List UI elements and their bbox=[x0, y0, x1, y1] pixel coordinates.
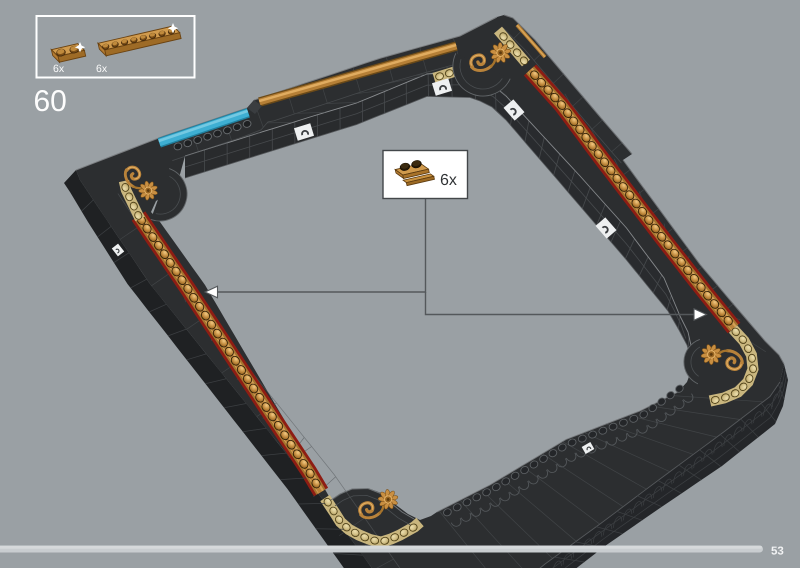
svg-text:6x: 6x bbox=[96, 63, 108, 75]
svg-text:6x: 6x bbox=[53, 63, 65, 75]
svg-text:53: 53 bbox=[771, 546, 784, 558]
svg-text:6x: 6x bbox=[440, 172, 457, 189]
svg-text:60: 60 bbox=[34, 85, 67, 118]
